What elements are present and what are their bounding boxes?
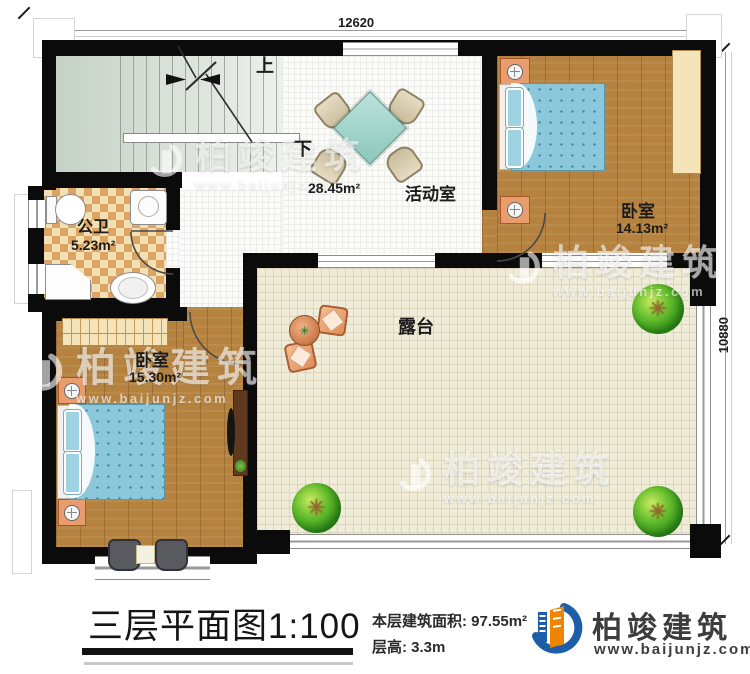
terrace-chair [316, 304, 349, 337]
activity-room-floor [282, 56, 482, 253]
terrace-parapet-right [696, 306, 711, 526]
chair-cushion [321, 309, 345, 333]
top-dimension-line2 [42, 36, 718, 37]
hallway-floor [172, 190, 282, 255]
stair-up-label: 上 [256, 57, 274, 77]
nightstand [58, 377, 86, 404]
washing-machine-door [138, 196, 159, 217]
wall-terrace-top-mid [435, 253, 542, 268]
tree: ✳ [292, 483, 341, 533]
wardrobe [672, 50, 701, 174]
top-dimension-line [42, 30, 718, 31]
right-dimension-label: 10880 [717, 305, 731, 365]
table-plant: ✳ [299, 324, 309, 338]
right-dimension-line2 [731, 52, 732, 544]
dimension-tick [18, 7, 31, 20]
pillow [64, 410, 81, 452]
terrace-label: 露台 [398, 318, 434, 338]
wall-right-outer [700, 40, 716, 253]
plant [235, 460, 246, 472]
wall-bathroom-right-lower [166, 268, 180, 312]
bedroom2-area-label: 15.30m² [129, 370, 181, 385]
tv [227, 408, 235, 456]
nightstand [500, 196, 530, 224]
activity-area-label: 28.45m² [308, 181, 360, 196]
terrace-parapet-bottom [288, 534, 690, 549]
terrace-table: ✳ [289, 315, 320, 346]
chair-cushion [289, 345, 313, 369]
wall-activity-bedroom1 [482, 40, 497, 210]
wall-terrace-top-left [243, 253, 318, 268]
hallway-floor [172, 255, 243, 307]
tree: ✳ [633, 486, 683, 537]
title-underline2 [84, 662, 353, 665]
window-activity-terrace [318, 255, 435, 268]
window-bedroom1-terrace [542, 255, 667, 268]
nightstand-lamp [507, 202, 523, 218]
floor-height-value: 3.3m [411, 639, 445, 656]
bedroom1-doorway [482, 210, 497, 255]
pillow [64, 452, 81, 494]
wardrobe [62, 318, 168, 346]
exterior-detail [12, 490, 32, 574]
title-underline [82, 648, 353, 655]
brand-website: www.baijunjz.com [594, 641, 750, 658]
stair-handrail [123, 133, 300, 143]
nightstand-lamp [64, 505, 80, 521]
pillow [506, 88, 523, 128]
brand-logo-icon [524, 598, 584, 660]
activity-room-label: 活动室 [405, 186, 456, 205]
nightstand-lamp [64, 383, 80, 399]
terrace-pillar [690, 524, 721, 558]
floor-area-label: 本层建筑面积: [372, 613, 467, 630]
wall-terrace-top-right [667, 253, 716, 268]
wall-bedroom2-left [42, 312, 56, 564]
window-bathroom-left2 [28, 264, 46, 294]
bedroom2-doorway [183, 307, 243, 364]
floor-height-stat: 层高: 3.3m [372, 636, 445, 657]
nightstand [58, 499, 86, 526]
pillow [506, 128, 523, 168]
window-activity-top [343, 42, 458, 56]
bathroom-area-label: 5.23m² [71, 238, 115, 253]
stair-down-label: 下 [294, 140, 312, 160]
desk-table [136, 545, 155, 564]
bathroom-doorway [166, 230, 180, 268]
top-dimension-label: 12620 [338, 16, 374, 30]
floor-area-stat: 本层建筑面积: 97.55m² [372, 610, 527, 631]
wall-corner-right [690, 268, 716, 306]
bedroom2-label: 卧室 [135, 352, 169, 371]
terrace-corner-block [257, 530, 290, 554]
plan-title: 三层平面图1:100 [88, 598, 361, 649]
wall-under-stairs [42, 172, 182, 188]
bedroom1-label: 卧室 [621, 203, 655, 222]
desk-chair [155, 539, 188, 571]
nightstand-lamp [507, 64, 523, 80]
floor-height-label: 层高: [372, 639, 407, 656]
bedroom1-area-label: 14.13m² [616, 221, 668, 236]
floor-area-value: 97.55m² [471, 613, 527, 630]
sink-basin [118, 277, 148, 299]
wall-left-upper [42, 40, 56, 190]
wall-bathroom-right-upper [166, 186, 180, 230]
tree: ✳ [632, 284, 684, 334]
window-bathroom-left [28, 200, 46, 228]
right-dimension-line [725, 52, 726, 544]
floor-plan-page: 12620 10880 [0, 0, 750, 674]
bathroom-label: 公卫 [77, 219, 109, 237]
nightstand [500, 58, 530, 86]
